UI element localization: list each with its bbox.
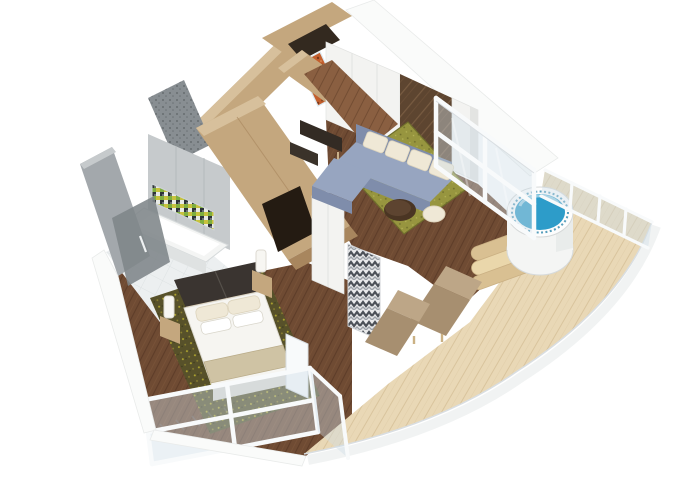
- chevron-curtain: [348, 244, 380, 340]
- suite-3d-floorplan: [0, 0, 680, 486]
- floorplan-render-canvas: [0, 0, 680, 486]
- coffee-table-top: [385, 200, 411, 216]
- table-lamp-left: [164, 296, 174, 318]
- table-lamp-right: [256, 250, 266, 272]
- cream-pouf: [423, 206, 445, 222]
